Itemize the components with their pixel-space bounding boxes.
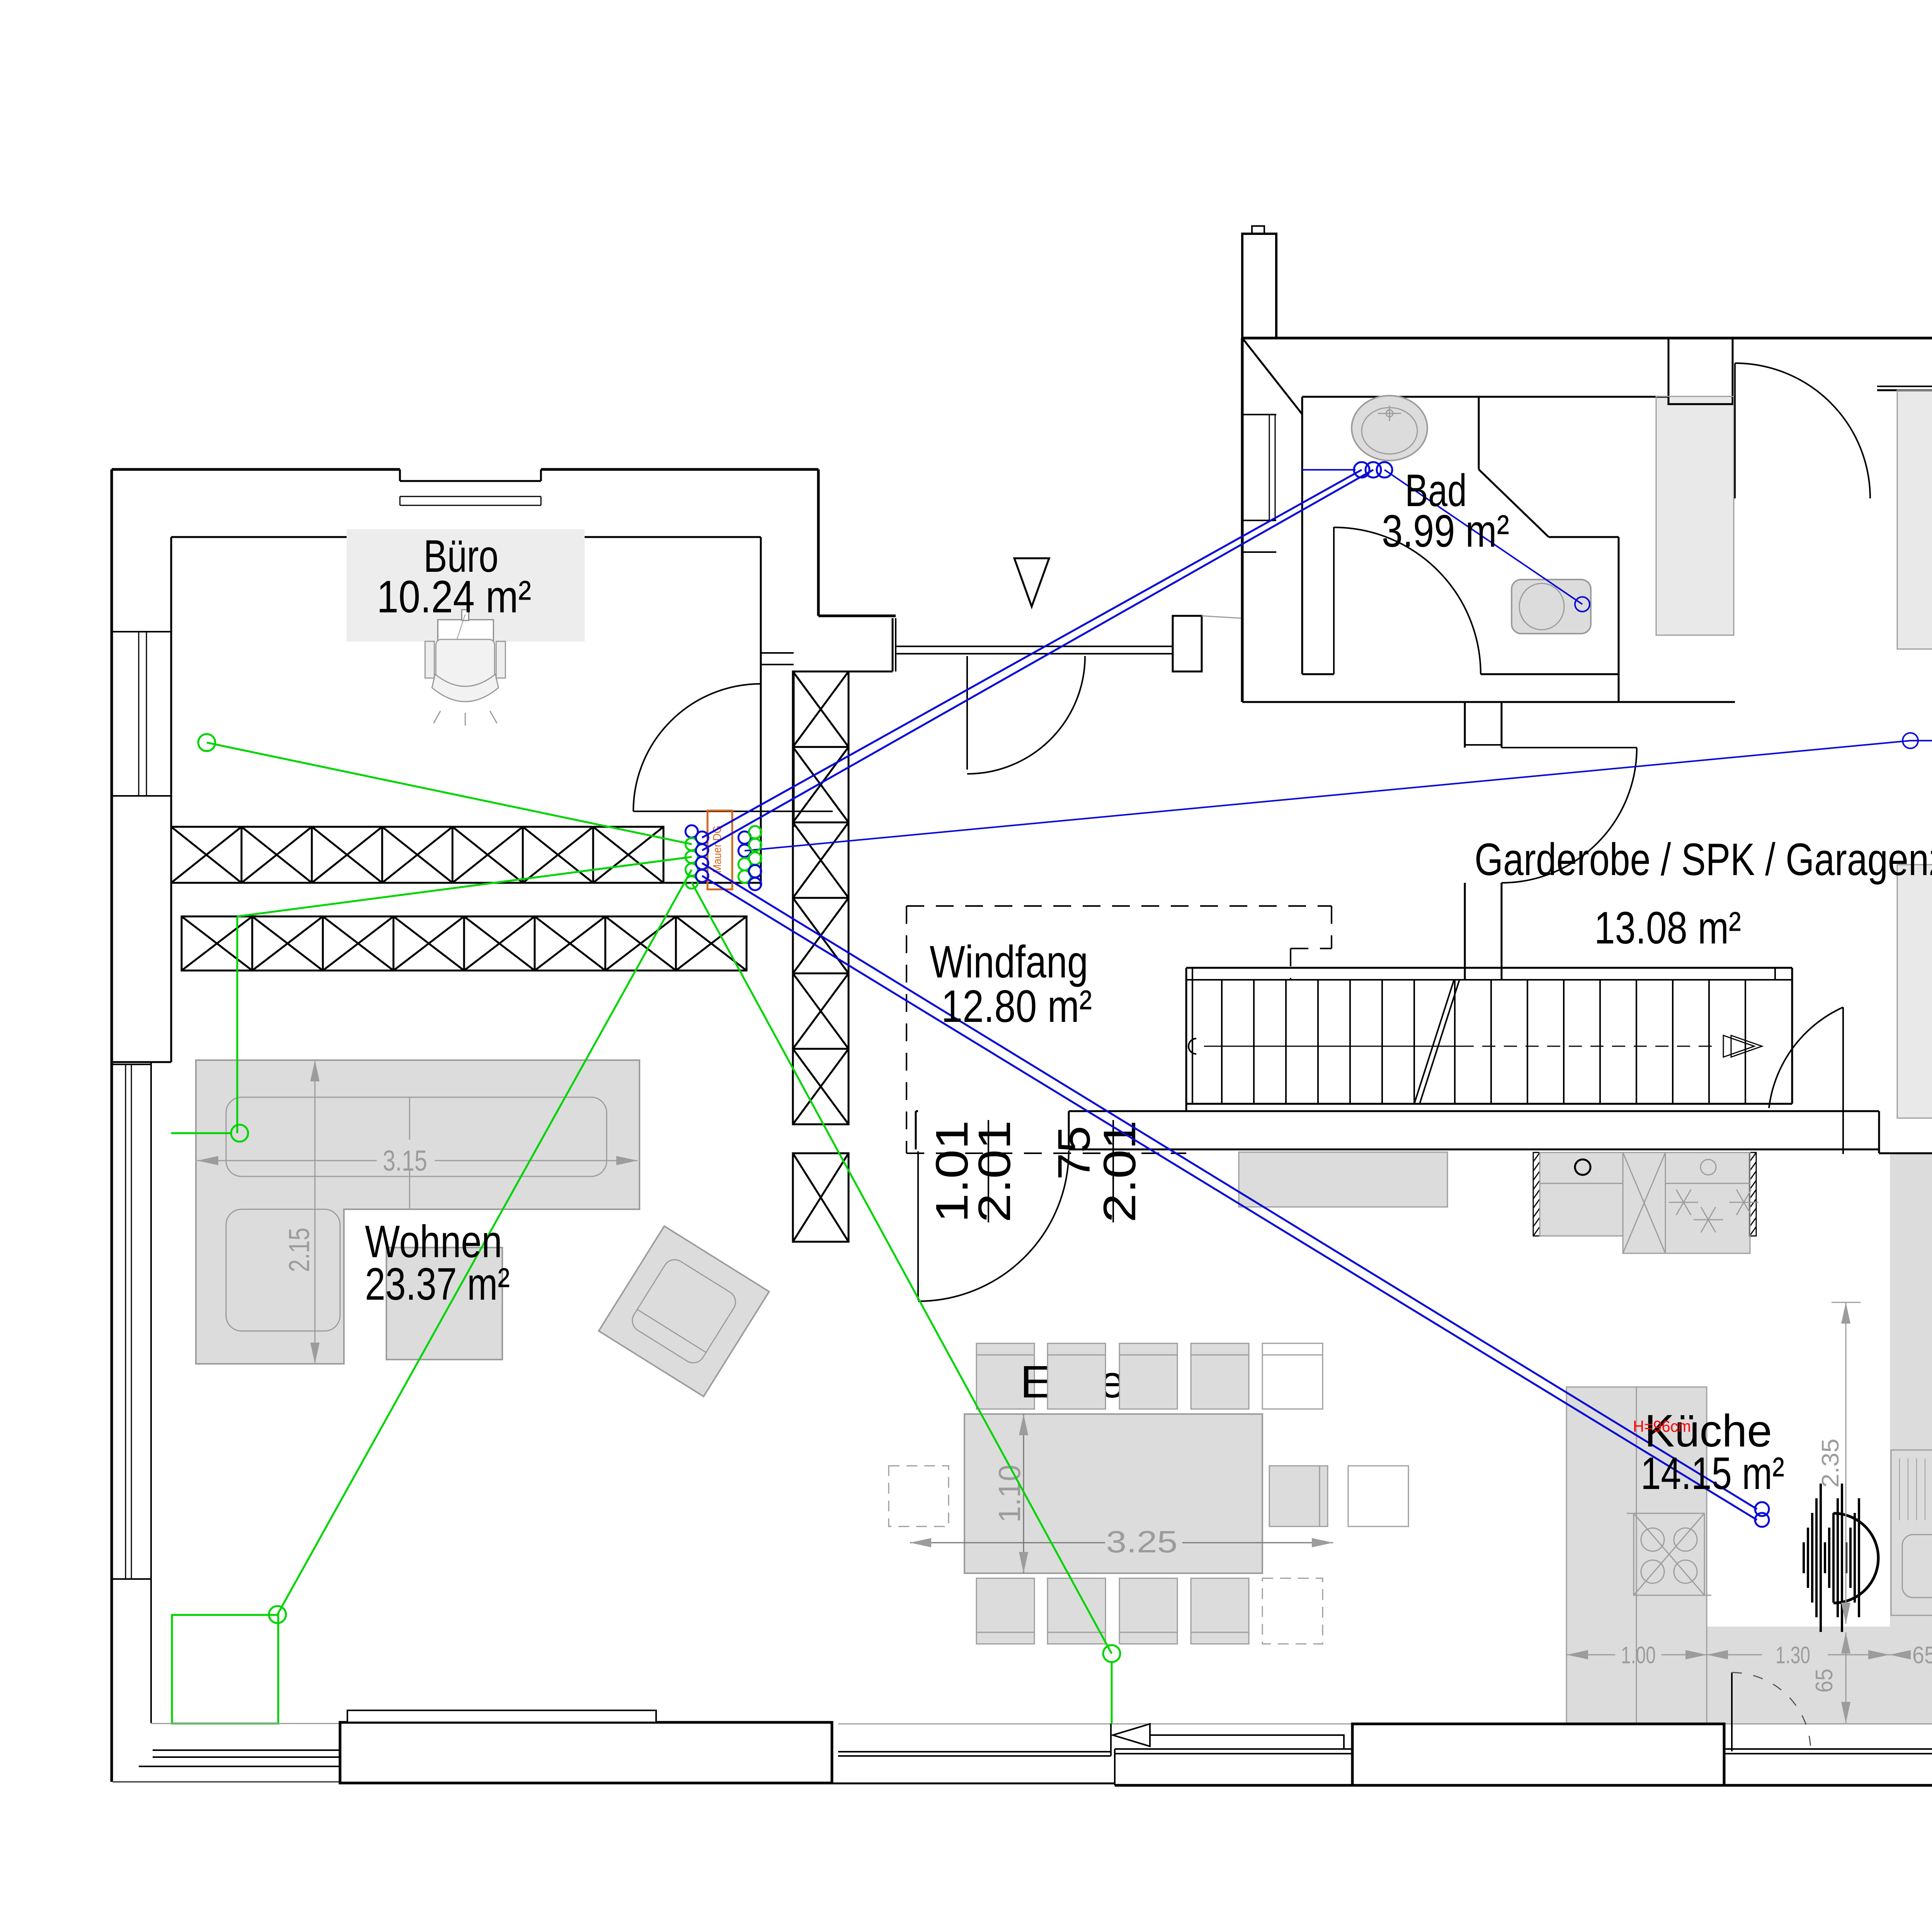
svg-text:65: 65 xyxy=(1912,1642,1932,1669)
svg-text:2.01: 2.01 xyxy=(1094,1120,1145,1223)
svg-text:3.25: 3.25 xyxy=(1106,1525,1178,1559)
svg-text:2.15: 2.15 xyxy=(283,1228,315,1272)
svg-text:3.15: 3.15 xyxy=(383,1144,427,1177)
svg-text:H=96cm: H=96cm xyxy=(1633,1417,1691,1435)
svg-text:23.37 m²: 23.37 m² xyxy=(365,1259,510,1310)
svg-text:2.35: 2.35 xyxy=(1817,1439,1844,1488)
svg-text:14.15 m²: 14.15 m² xyxy=(1641,1448,1784,1499)
svg-text:2.01: 2.01 xyxy=(969,1120,1020,1223)
svg-text:75: 75 xyxy=(1049,1126,1100,1180)
svg-text:10.24 m²: 10.24 m² xyxy=(377,571,531,622)
svg-text:1.00: 1.00 xyxy=(1621,1642,1656,1669)
svg-text:12.80 m²: 12.80 m² xyxy=(941,981,1092,1032)
svg-text:Windfang: Windfang xyxy=(930,937,1088,988)
svg-text:13.08 m²: 13.08 m² xyxy=(1594,903,1741,954)
svg-text:3.99 m²: 3.99 m² xyxy=(1382,506,1509,557)
svg-text:1.10: 1.10 xyxy=(992,1465,1027,1523)
svg-text:1.30: 1.30 xyxy=(1776,1642,1810,1669)
svg-text:65: 65 xyxy=(1811,1669,1838,1693)
svg-text:Garderobe / SPK / Garagenzug.: Garderobe / SPK / Garagenzug. xyxy=(1475,834,1932,885)
